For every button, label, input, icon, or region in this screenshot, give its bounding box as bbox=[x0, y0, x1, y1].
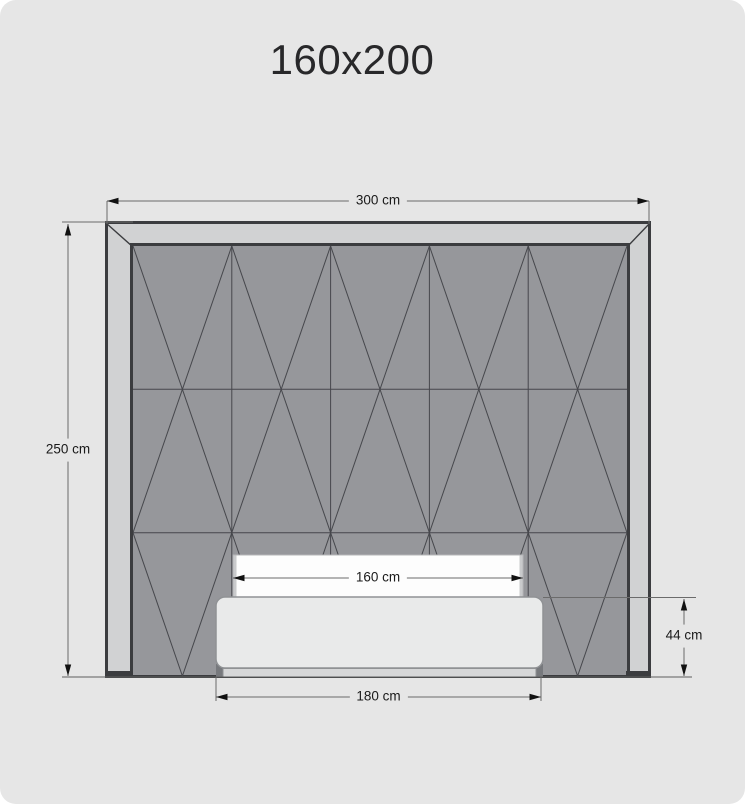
mattress-left-shade bbox=[234, 556, 237, 599]
dim-label-mattress-width: 160 cm bbox=[349, 570, 407, 587]
headboard-diagram bbox=[0, 0, 745, 804]
bed-plinth bbox=[223, 669, 536, 678]
frame-left-cap bbox=[105, 671, 132, 677]
dim-label-overall-height: 250 cm bbox=[43, 439, 93, 462]
page-title: 160x200 bbox=[270, 36, 435, 84]
diagram-canvas: 160x200 300 cm 250 cm 160 cm 180 cm 44 c… bbox=[0, 0, 745, 804]
bed-frame bbox=[216, 597, 543, 668]
dim-label-bed-width: 180 cm bbox=[349, 689, 407, 706]
frame-right-cap bbox=[626, 671, 651, 677]
mattress-right-shade bbox=[520, 556, 523, 599]
dim-label-bed-height: 44 cm bbox=[663, 625, 706, 648]
dim-label-overall-width: 300 cm bbox=[349, 193, 407, 210]
